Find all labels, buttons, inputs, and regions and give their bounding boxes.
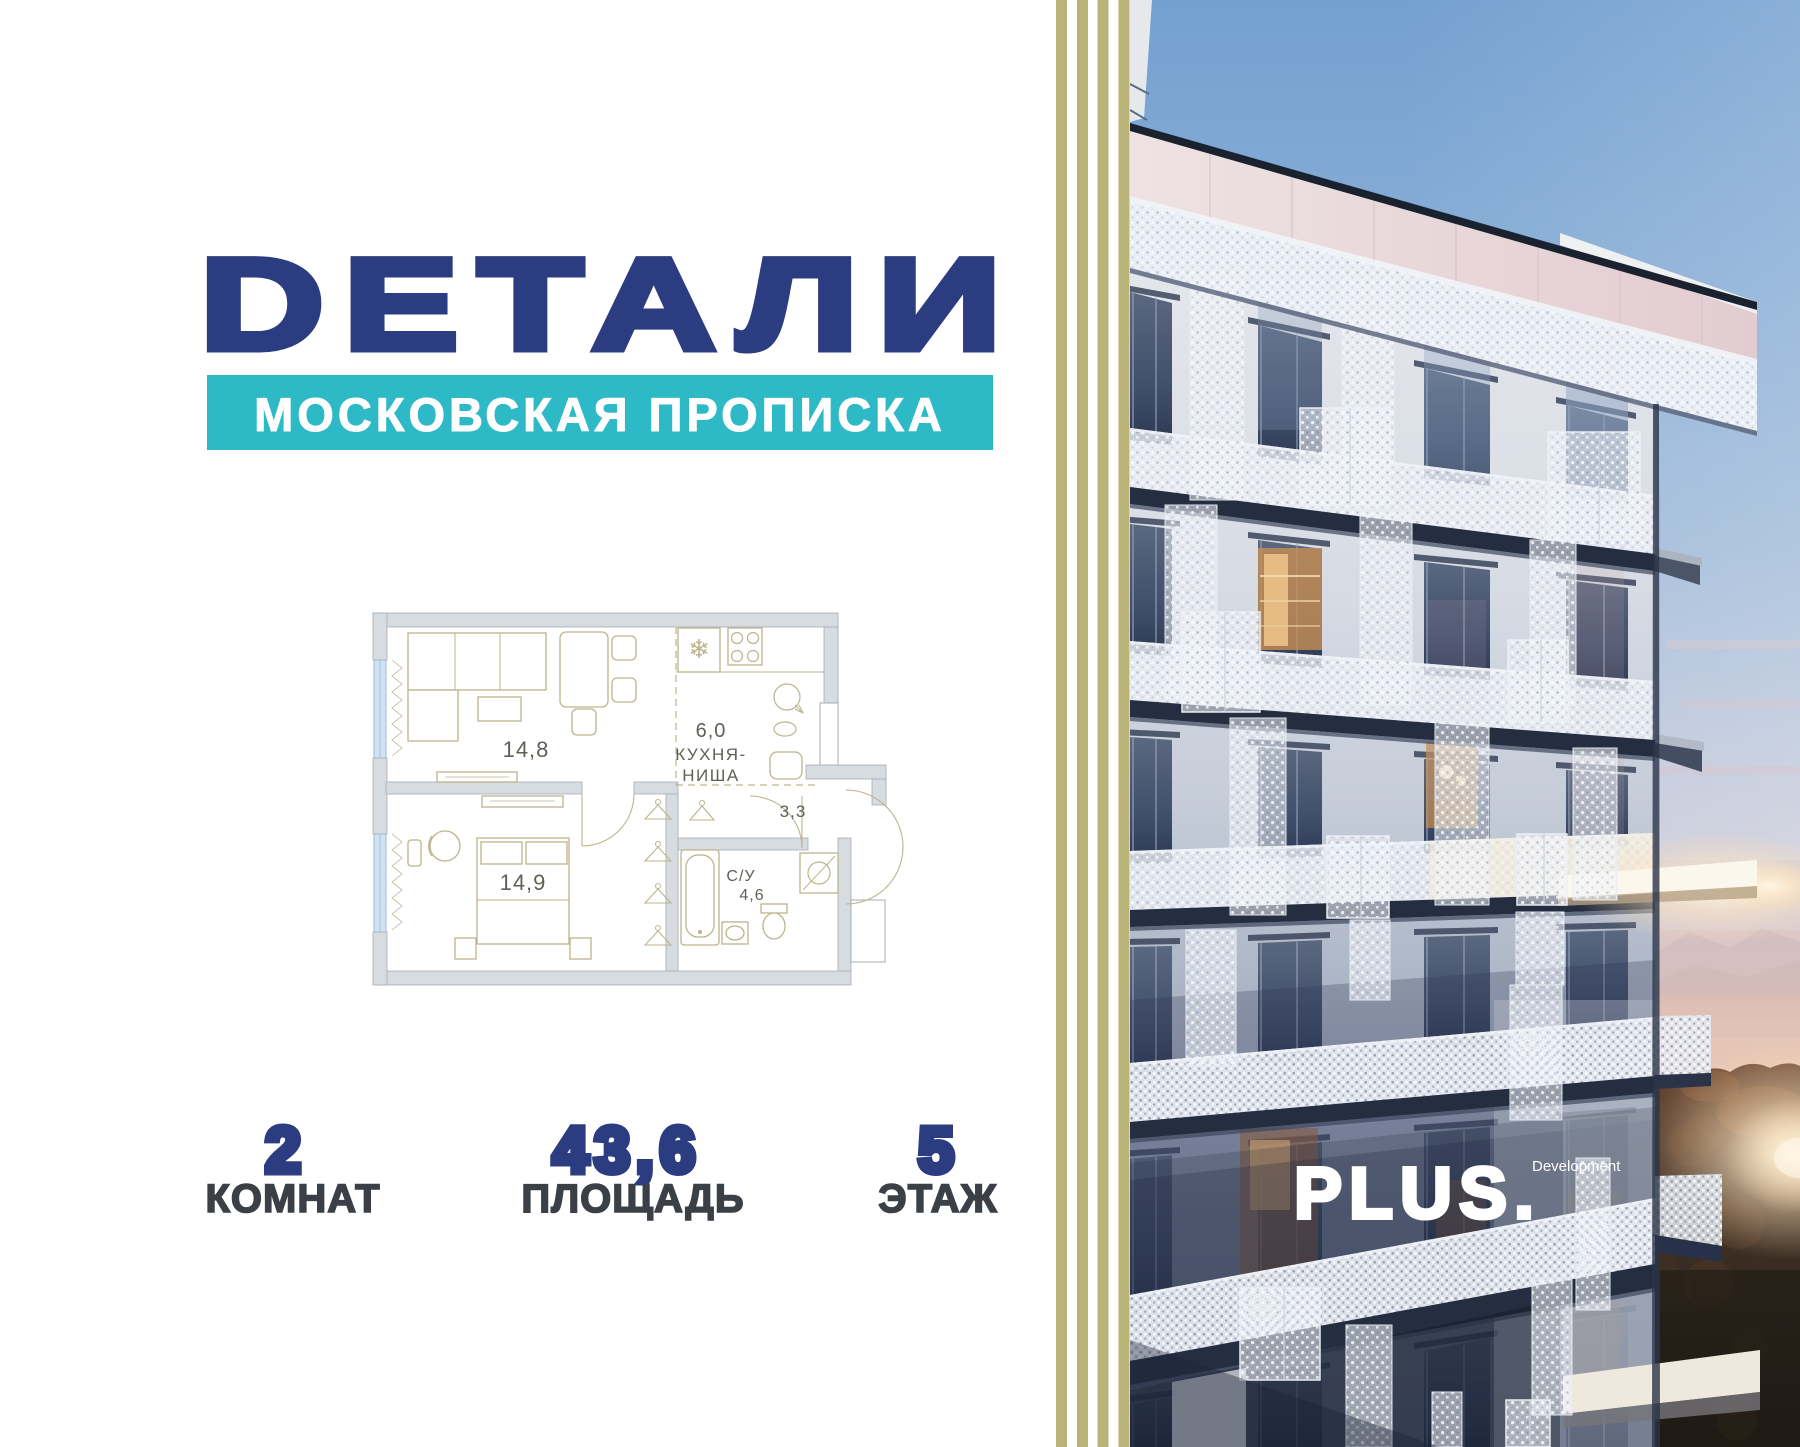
- svg-text:4,6: 4,6: [739, 887, 764, 904]
- svg-text:2: 2: [265, 1114, 301, 1186]
- svg-text:14,9: 14,9: [500, 870, 547, 895]
- svg-text:НИША: НИША: [682, 766, 739, 785]
- svg-text:ЭТАЖ: ЭТАЖ: [878, 1177, 997, 1221]
- svg-text:ПЛОЩАДЬ: ПЛОЩАДЬ: [521, 1177, 744, 1221]
- svg-text:КОМНАТ: КОМНАТ: [205, 1177, 380, 1221]
- svg-text:6,0: 6,0: [696, 720, 727, 742]
- svg-text:КУХНЯ-: КУХНЯ-: [675, 745, 746, 764]
- svg-text:43,6: 43,6: [553, 1114, 702, 1186]
- svg-text:14,8: 14,8: [503, 737, 550, 762]
- svg-text:❄: ❄: [688, 634, 710, 664]
- svg-text:МОСКОВСКАЯ ПРОПИСКА: МОСКОВСКАЯ ПРОПИСКА: [254, 388, 946, 441]
- svg-text:DЕТАЛИ: DЕТАЛИ: [200, 232, 1021, 377]
- svg-text:3,3: 3,3: [780, 802, 807, 821]
- svg-text:С/У: С/У: [726, 868, 755, 885]
- svg-text:5: 5: [918, 1114, 954, 1186]
- svg-text:Development: Development: [1532, 1158, 1621, 1175]
- svg-text:PLUS.: PLUS.: [1294, 1154, 1541, 1234]
